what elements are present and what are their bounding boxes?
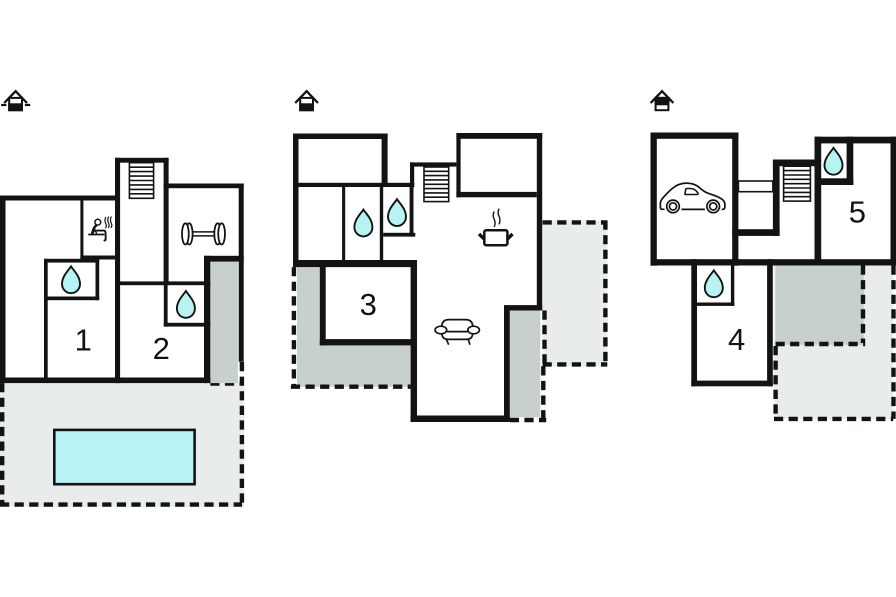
- svg-text:2: 2: [153, 331, 170, 366]
- svg-text:5: 5: [849, 195, 866, 230]
- svg-text:1: 1: [75, 322, 92, 357]
- svg-text:3: 3: [360, 287, 377, 322]
- svg-text:4: 4: [728, 322, 745, 357]
